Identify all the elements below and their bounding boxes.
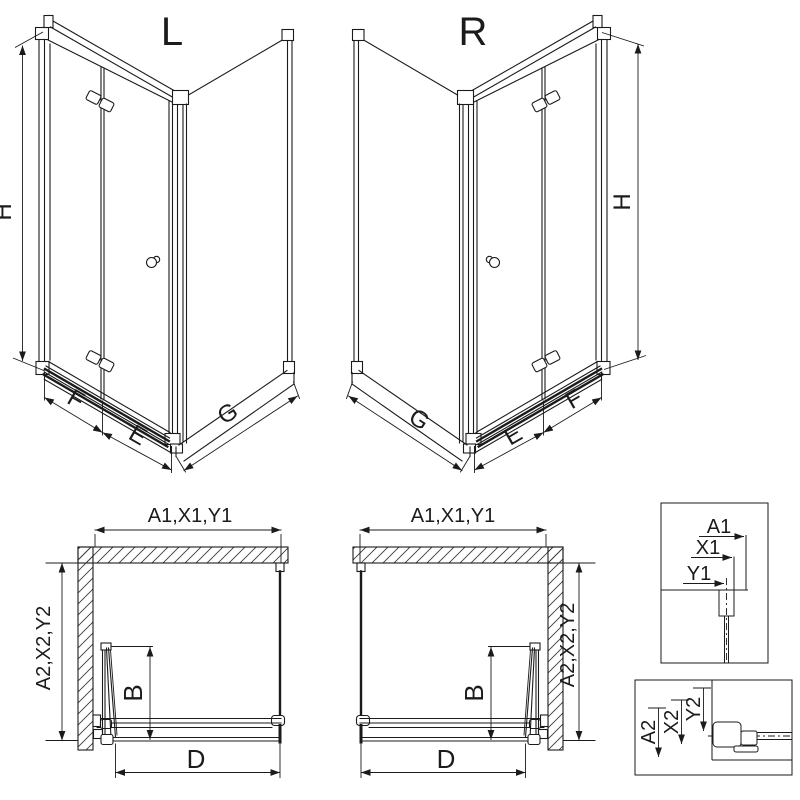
dim-label-d-right-plan: D: [437, 744, 456, 774]
dim-label-d-left-plan: D: [187, 744, 206, 774]
detail-label-y2: Y2: [683, 697, 705, 721]
dim-h-left-lines: [13, 32, 45, 371]
wall-top-right-plan: [353, 547, 563, 563]
dim-label-h-left: H: [0, 203, 17, 220]
detail-label-x1: X1: [696, 537, 720, 559]
wall-side-left-plan: [78, 547, 93, 750]
variant-label-left: L: [161, 10, 183, 54]
variant-label-right: R: [459, 10, 488, 54]
plan-walls: [78, 547, 563, 750]
wall-top-left-plan: [78, 547, 288, 563]
dim-label-depth-right-plan: A2,X2,Y2: [557, 603, 579, 688]
dim-label-g-left: G: [213, 397, 243, 430]
drawing-canvas: L H F E G R H F E G A1,X1,Y1 A2,X2,Y2 B …: [0, 0, 800, 800]
dim-label-b-left-plan: B: [118, 684, 148, 701]
iso-view-right: [347, 16, 647, 473]
dim-label-g-right: G: [404, 403, 434, 436]
dim-label-width-left-plan: A1,X1,Y1: [148, 505, 233, 527]
dim-label-b-right-plan: B: [459, 684, 489, 701]
dim-label-width-right-plan: A1,X1,Y1: [411, 505, 496, 527]
technical-drawing: L H F E G R H F E G A1,X1,Y1 A2,X2,Y2 B …: [0, 0, 800, 800]
detail-label-a1: A1: [707, 516, 731, 538]
detail-label-a2: A2: [638, 720, 660, 744]
dim-label-f-right: F: [561, 384, 587, 415]
iso-view-left: [13, 16, 300, 473]
dim-label-depth-left-plan: A2,X2,Y2: [33, 606, 55, 691]
detail-label-x2: X2: [661, 710, 683, 734]
detail-label-y1: Y1: [687, 563, 711, 585]
dim-label-h-right: H: [609, 193, 636, 210]
